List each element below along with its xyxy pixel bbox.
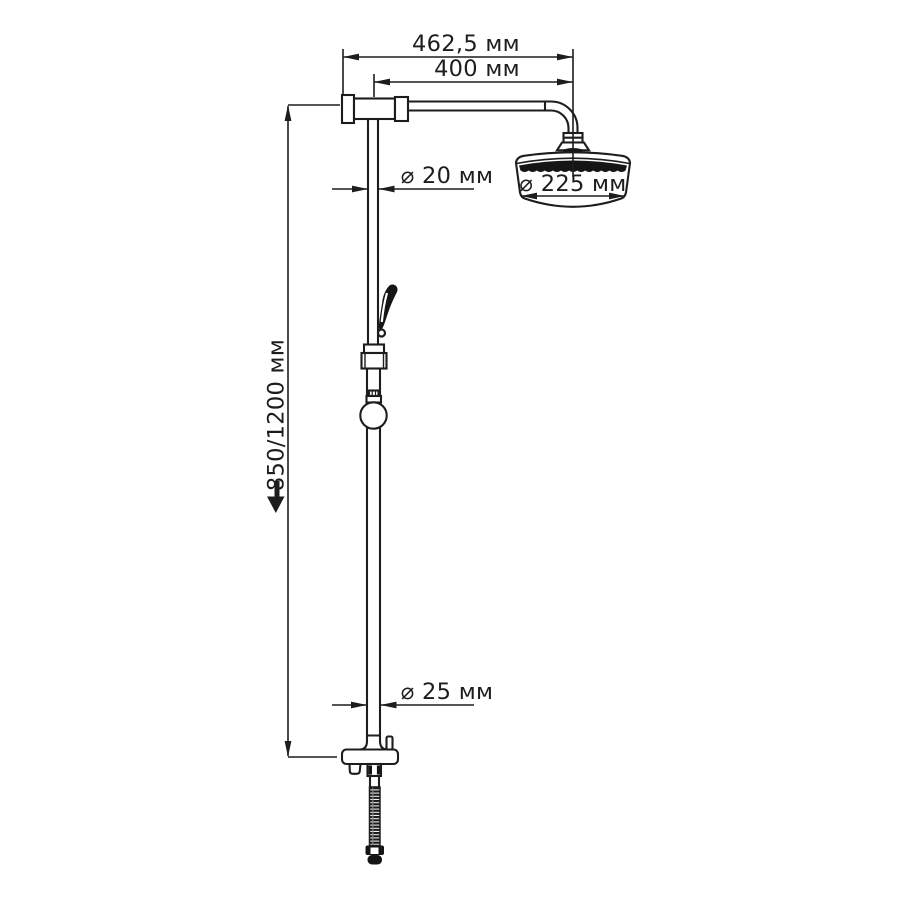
arm-base-cylinder — [354, 99, 395, 120]
diverter-pin — [387, 737, 393, 750]
label-head-diameter: ⌀ 225 мм — [519, 171, 626, 197]
shower-system-drawing: 462,5 мм 400 мм ⌀ 20 мм ⌀ 225 мм 850/120… — [0, 0, 900, 900]
slider-clamp — [362, 345, 387, 369]
label-arm-projection: 400 мм — [434, 56, 520, 82]
hand-shower — [378, 285, 398, 337]
dimension-lower-pipe-diameter: ⌀ 25 мм — [332, 679, 493, 708]
wall-flange — [342, 95, 354, 123]
arm-collar — [395, 97, 408, 121]
mixer-bracket — [342, 736, 398, 777]
dimension-upper-pipe-diameter: ⌀ 20 мм — [332, 163, 493, 192]
dimension-head-diameter: ⌀ 225 мм — [519, 171, 626, 199]
label-upper-pipe-diameter: ⌀ 20 мм — [401, 163, 494, 189]
dimension-arm-projection: 400 мм — [374, 56, 573, 97]
riser-pole — [367, 119, 380, 741]
ball-knob — [360, 402, 386, 428]
hose-end-cap — [368, 855, 383, 865]
hand-shower-hook-ring — [378, 330, 385, 337]
bracket-body — [342, 750, 398, 765]
bracket-outlet — [350, 764, 361, 774]
label-arm-overall: 462,5 мм — [412, 31, 520, 57]
label-column-height: 850/1200 мм — [264, 339, 290, 491]
adjustment-knob — [360, 391, 386, 429]
technical-drawing-canvas: 462,5 мм 400 мм ⌀ 20 мм ⌀ 225 мм 850/120… — [0, 0, 900, 900]
hand-shower-body — [379, 285, 398, 331]
label-lower-pipe-diameter: ⌀ 25 мм — [401, 679, 494, 705]
shower-hose — [366, 776, 385, 865]
braided-hose — [370, 787, 381, 846]
dimension-column-height: 850/1200 мм — [264, 105, 341, 757]
